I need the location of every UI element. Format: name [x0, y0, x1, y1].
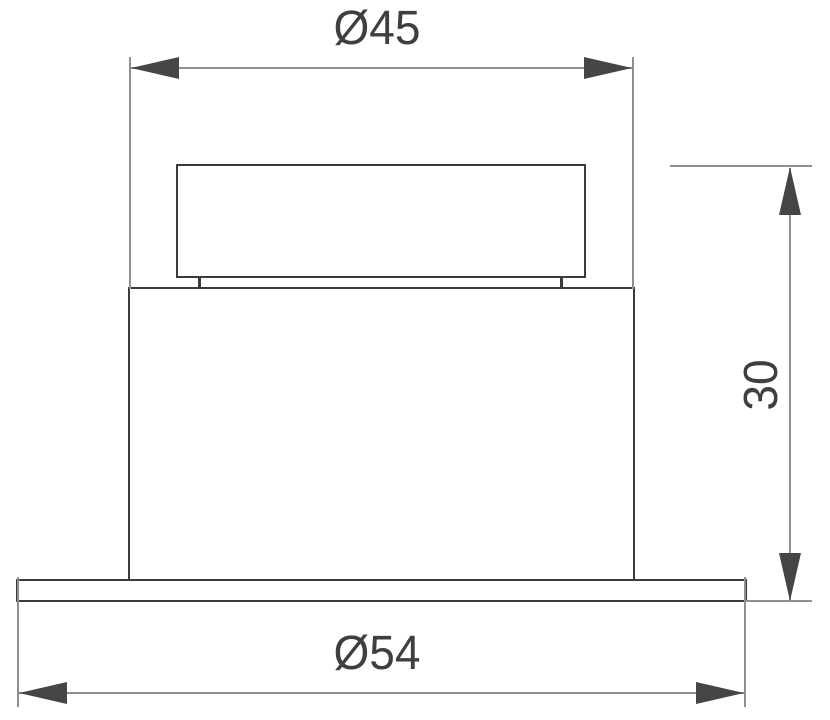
- top-dim-arrow-right-icon: [584, 57, 632, 79]
- top-dim-label: Ø45: [281, 5, 473, 53]
- bottom-dim-arrow-right-icon: [696, 682, 744, 704]
- top-dim-extension-right: [632, 57, 634, 289]
- top-dim-arrow-left-icon: [131, 57, 179, 79]
- bottom-dim-line: [19, 692, 744, 694]
- right-dim-arrow-down-icon: [779, 553, 801, 601]
- top-cap-outline: [176, 164, 586, 278]
- right-dim-line: [789, 168, 791, 600]
- right-dim-label: 30: [735, 359, 789, 411]
- drawing-canvas: Ø45 30 Ø54: [0, 0, 830, 720]
- bottom-dim-extension-right: [744, 577, 746, 707]
- bottom-dim-label: Ø54: [281, 630, 473, 678]
- top-dim-extension-left: [129, 57, 131, 289]
- right-dim-arrow-up-icon: [779, 167, 801, 215]
- flange-outline: [16, 579, 747, 602]
- top-dim-line: [131, 67, 632, 69]
- body-outline: [128, 287, 635, 579]
- bottom-dim-arrow-left-icon: [19, 682, 67, 704]
